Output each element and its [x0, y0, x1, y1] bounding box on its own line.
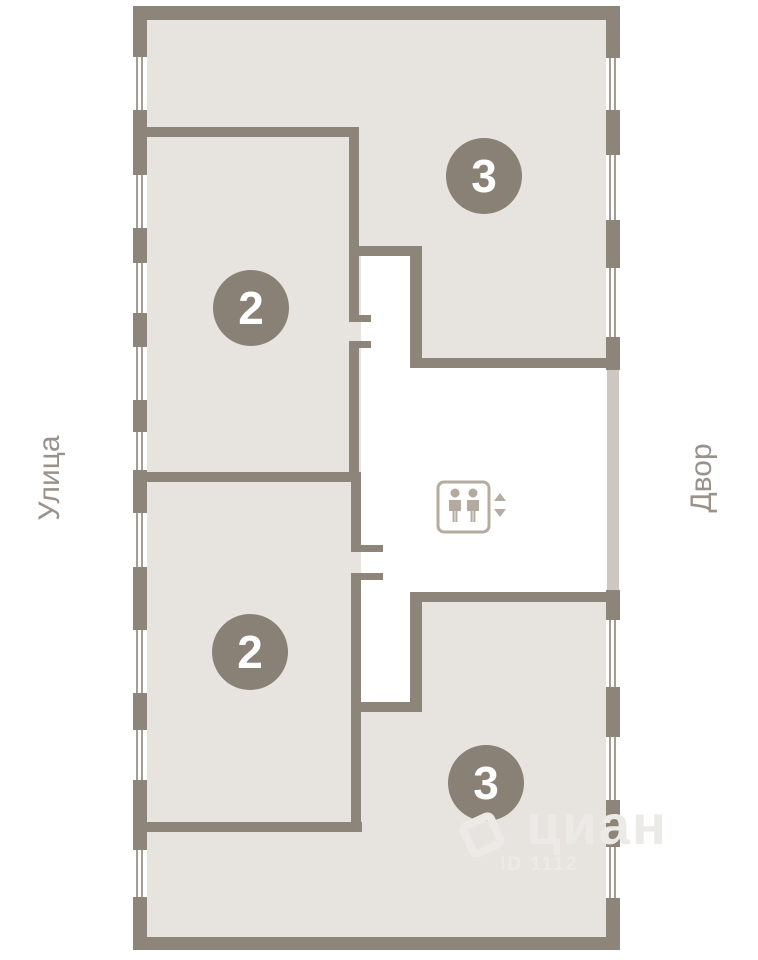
wall-unit2-upper-right-a: [349, 127, 359, 315]
wall-unit2-divider: [147, 472, 361, 482]
wall-unit2-upper-right-b: [349, 348, 359, 472]
elevator-icon: [436, 480, 512, 534]
door-jamb: [349, 315, 371, 322]
unit-badge-2-lower[interactable]: 2: [212, 614, 288, 690]
arrow-down-icon: [494, 509, 506, 517]
window-glyph: [133, 175, 147, 228]
window-glyph: [606, 58, 620, 110]
window-glyph: [133, 630, 147, 693]
outer-wall-left: [133, 6, 147, 950]
outer-wall-top: [133, 6, 620, 20]
window-glyph: [606, 620, 620, 687]
window-glyph: [606, 155, 620, 220]
unit-badge-2-upper[interactable]: 2: [213, 270, 289, 346]
wall-unit3-lower-top: [410, 592, 620, 602]
window-glyph: [606, 268, 620, 337]
wall-unit2-upper-top: [133, 127, 359, 137]
window-glyph: [606, 737, 620, 800]
floor-plan: 3 2 2 3 Улица Двор циан ID 1112: [0, 0, 758, 960]
window-glyph: [133, 432, 147, 470]
window-glyph: [133, 263, 147, 313]
door-jamb: [351, 573, 383, 580]
arrow-up-icon: [494, 493, 506, 501]
facade-light-band: [607, 368, 619, 592]
unit-badge-3-lower[interactable]: 3: [448, 745, 524, 821]
outer-wall-bottom: [133, 937, 620, 950]
wall-unit3-upper-bottom: [410, 358, 620, 368]
wall-unit2-lower-right-a: [351, 482, 361, 545]
door-jamb: [351, 545, 383, 552]
street-label: Улица: [32, 408, 68, 548]
window-glyph: [133, 347, 147, 400]
window-glyph: [133, 513, 147, 567]
window-glyph: [133, 850, 147, 897]
wall-corridor-right-lower: [410, 602, 422, 712]
wall-corridor-cap: [355, 702, 422, 712]
window-glyph: [133, 57, 147, 110]
window-glyph: [606, 847, 620, 898]
floor-plan-page: { "plan": { "street_label": "Улица", "co…: [0, 0, 758, 960]
courtyard-label: Двор: [684, 408, 720, 548]
elevator-cabin-icon: [436, 480, 512, 534]
wall-unit2-lower-bottom: [147, 822, 362, 832]
wall-corridor-right-upper: [410, 246, 422, 368]
window-glyph: [133, 730, 147, 780]
unit-badge-3-upper[interactable]: 3: [446, 138, 522, 214]
wall-unit2-lower-right-b: [351, 580, 361, 822]
door-jamb: [349, 341, 371, 348]
